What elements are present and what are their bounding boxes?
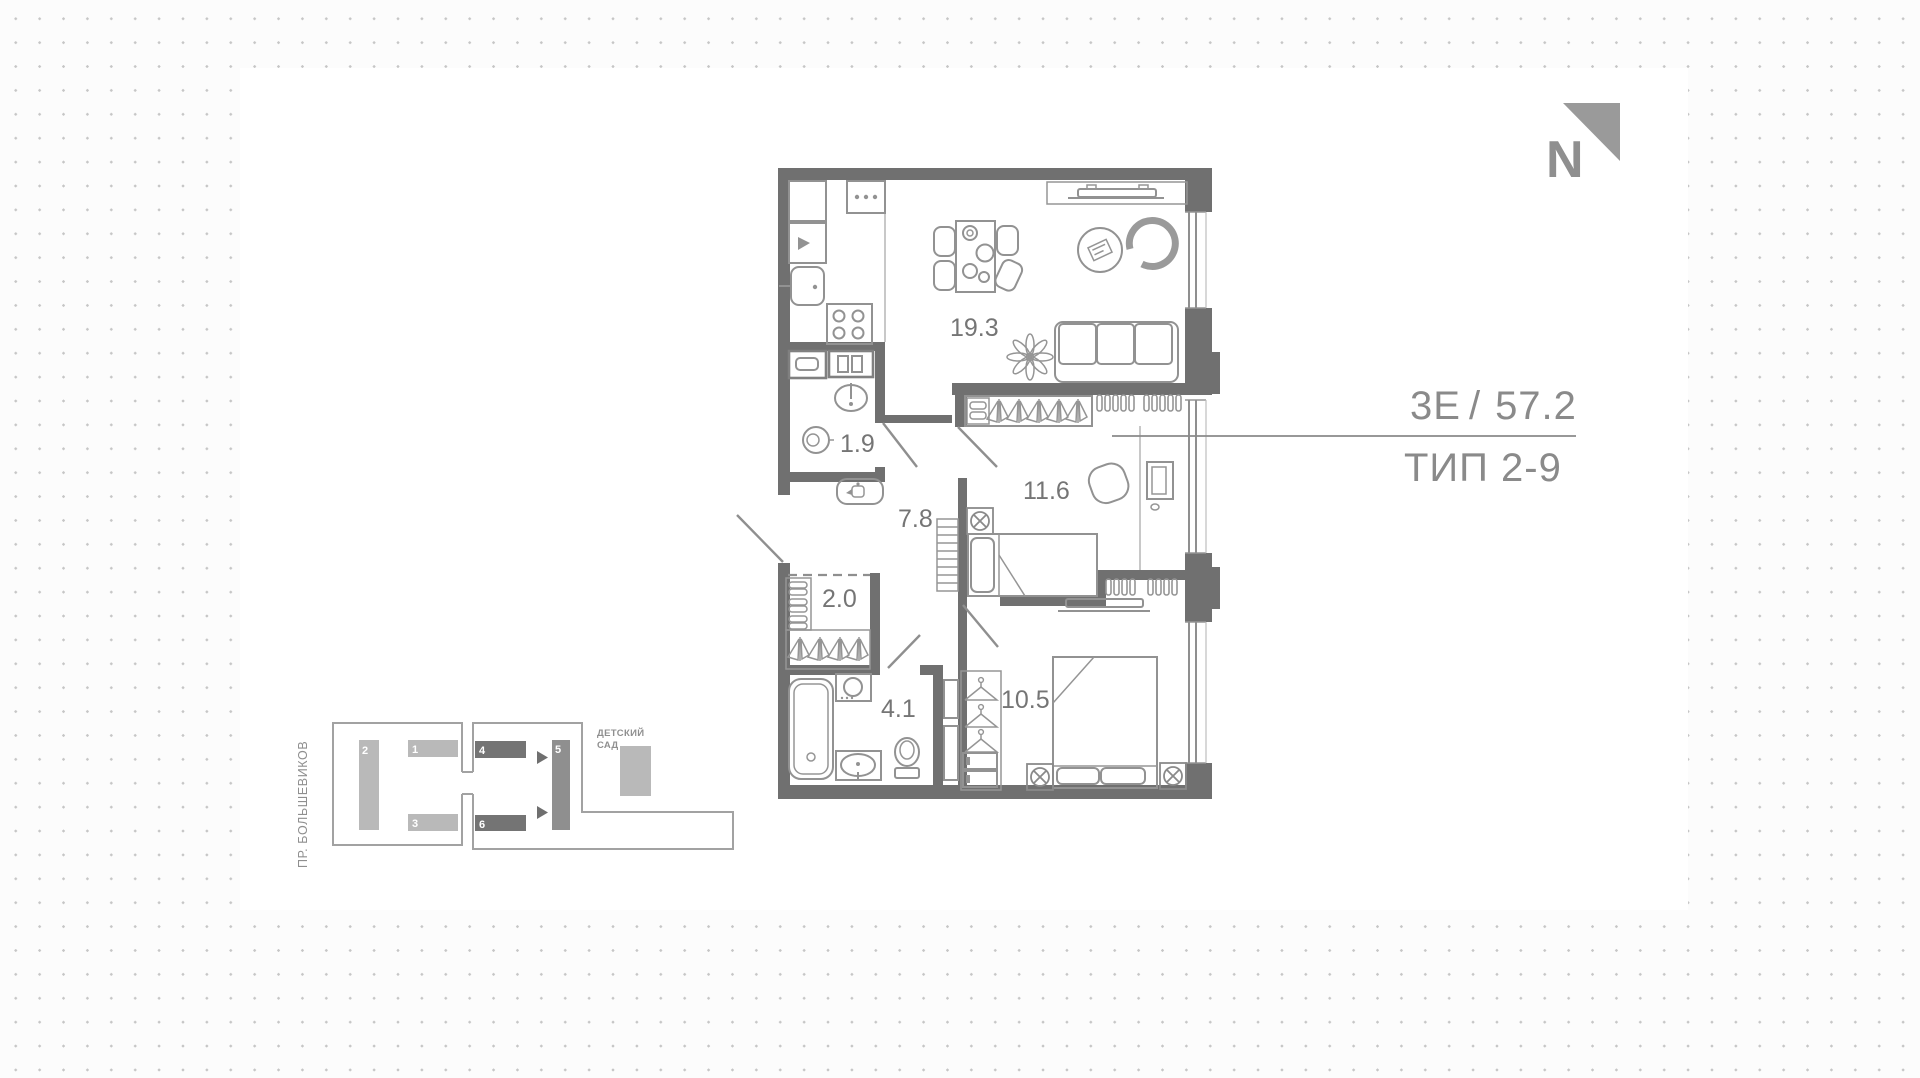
north-label: N bbox=[1546, 131, 1584, 189]
room-label-bathroom: 4.1 bbox=[881, 695, 916, 723]
svg-text:4: 4 bbox=[479, 745, 486, 757]
room-label-bathroom-small: 1.9 bbox=[840, 430, 875, 458]
building-5: 5 bbox=[552, 740, 570, 830]
svg-text:6: 6 bbox=[479, 819, 485, 831]
street-label: ПР. БОЛЬШЕВИКОВ bbox=[296, 741, 310, 868]
building-3: 3 bbox=[408, 814, 458, 831]
building-2: 2 bbox=[359, 740, 379, 830]
building-1: 1 bbox=[408, 740, 458, 757]
room-label-bedroom-2: 10.5 bbox=[1001, 686, 1050, 714]
room-label-bedroom-1: 11.6 bbox=[1023, 477, 1070, 505]
svg-text:1: 1 bbox=[412, 744, 418, 756]
kindergarten-block bbox=[620, 746, 651, 796]
svg-text:3: 3 bbox=[412, 818, 418, 830]
building-6: 6 bbox=[475, 815, 526, 831]
plan-type-label: ТИП 2-9 bbox=[1404, 446, 1562, 490]
plan-canvas: 19.3 1.9 7.8 11.6 2.0 4.1 10.5 3Е/57.2 Т… bbox=[0, 0, 1920, 1078]
svg-text:5: 5 bbox=[555, 744, 561, 756]
room-label-living-kitchen: 19.3 bbox=[950, 314, 999, 342]
building-4: 4 bbox=[475, 741, 526, 758]
room-label-storage: 2.0 bbox=[822, 585, 857, 613]
room-label-hallway: 7.8 bbox=[898, 505, 933, 533]
svg-text:2: 2 bbox=[362, 745, 368, 757]
page: 19.3 1.9 7.8 11.6 2.0 4.1 10.5 3Е/57.2 Т… bbox=[0, 0, 1920, 1078]
